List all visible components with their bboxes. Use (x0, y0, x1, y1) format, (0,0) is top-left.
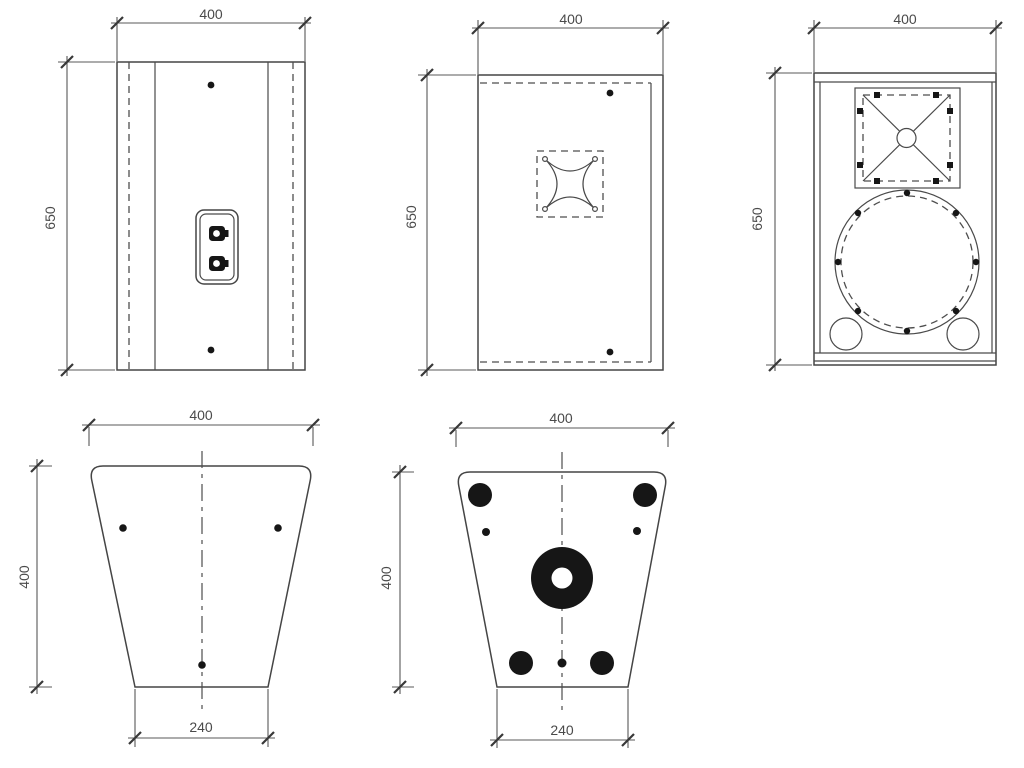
top-screw-center (198, 661, 206, 669)
side-screw-top (607, 90, 614, 97)
back-width-dim-label: 400 (199, 6, 223, 22)
front-height-dimension: 650 (749, 67, 812, 371)
front-view: 400 650 (749, 11, 1002, 371)
top-outline (91, 466, 310, 687)
foot-top-left (468, 483, 492, 507)
front-height-dim-label: 650 (749, 207, 765, 231)
back-screw-top (208, 82, 215, 89)
back-view: 400 650 (42, 6, 311, 376)
front-width-dimension: 400 (808, 11, 1002, 72)
port-right (947, 318, 979, 350)
bottom-width-dim-label: 400 (549, 410, 573, 426)
bottom-screw-right (633, 527, 641, 535)
top-screw-right (274, 524, 282, 532)
top-depth-dim-label: 400 (16, 565, 32, 589)
foot-top-right (633, 483, 657, 507)
pole-mount-socket (531, 547, 593, 609)
top-width-dimension: 400 (82, 407, 320, 446)
top-view: 400 400 240 (16, 407, 320, 747)
side-width-dim-label: 400 (559, 11, 583, 27)
top-screw-left (119, 524, 127, 532)
side-cabinet-outline (478, 75, 663, 370)
side-height-dimension: 650 (403, 69, 476, 376)
side-screw-bottom (607, 349, 614, 356)
speaker-dimension-drawing: 400 650 (0, 0, 1024, 768)
side-width-dimension: 400 (472, 11, 669, 74)
bottom-width-dimension: 400 (449, 410, 675, 447)
side-view: 400 650 (403, 11, 669, 376)
port-left (830, 318, 862, 350)
bottom-base-dim-label: 240 (550, 722, 574, 738)
front-width-dim-label: 400 (893, 11, 917, 27)
bottom-depth-dim-label: 400 (378, 566, 394, 590)
back-height-dim-label: 650 (42, 206, 58, 230)
foot-bottom-left (509, 651, 533, 675)
top-base-dim-label: 240 (189, 719, 213, 735)
back-width-dimension: 400 (111, 6, 311, 61)
technical-drawing-page: 400 650 (0, 0, 1024, 768)
bottom-depth-dimension: 400 (378, 465, 414, 694)
back-screw-bottom (208, 347, 215, 354)
foot-bottom-right (590, 651, 614, 675)
side-height-dim-label: 650 (403, 205, 419, 229)
top-depth-dimension: 400 (16, 459, 52, 694)
back-height-dimension: 650 (42, 56, 115, 376)
top-width-dim-label: 400 (189, 407, 213, 423)
horn-throat (897, 129, 916, 148)
back-cabinet-outline (117, 62, 305, 370)
bottom-screw-left (482, 528, 490, 536)
bottom-screw-center (558, 659, 567, 668)
bottom-view: 400 400 240 (378, 410, 675, 748)
